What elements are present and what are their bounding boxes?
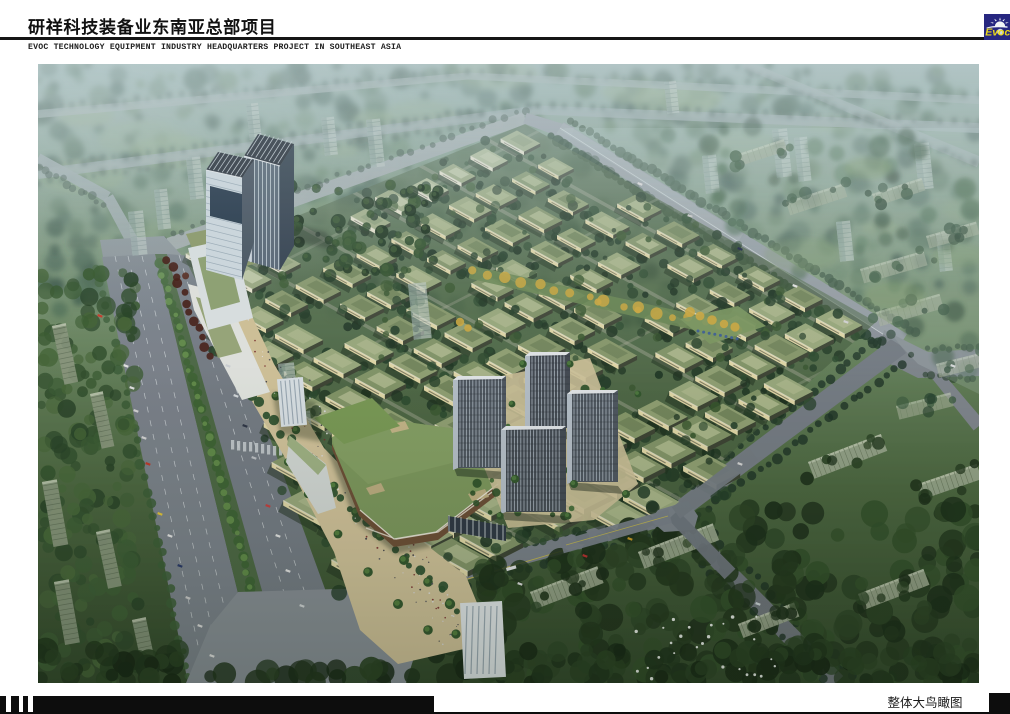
svg-text:Evoc: Evoc: [985, 27, 1010, 39]
